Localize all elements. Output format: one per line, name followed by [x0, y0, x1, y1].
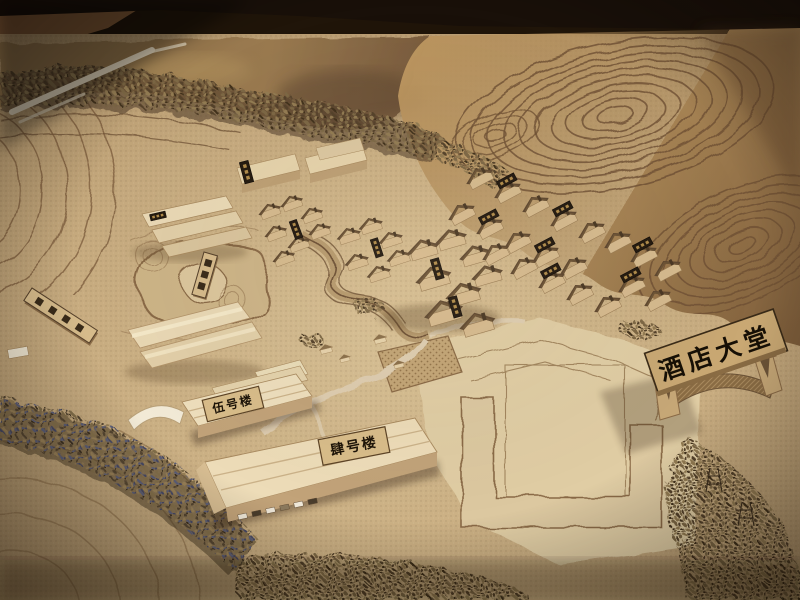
photo-architectural-model: 伍号楼 肆号楼 — [0, 0, 800, 600]
model-scene: 伍号楼 肆号楼 — [0, 0, 800, 600]
lighting — [0, 0, 800, 600]
